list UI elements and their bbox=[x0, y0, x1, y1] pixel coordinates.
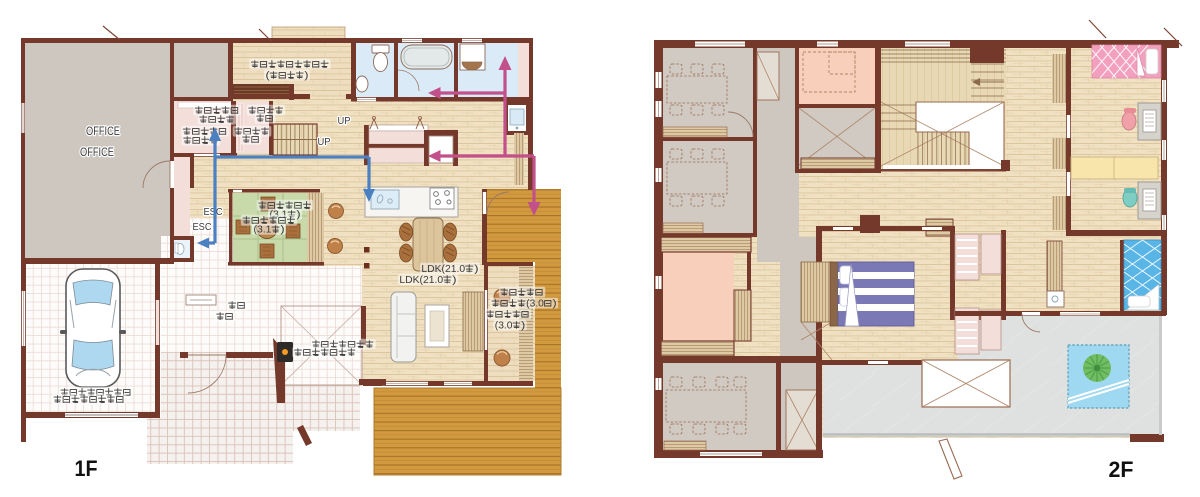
svg-text:UP: UP bbox=[318, 136, 331, 148]
svg-text:(3.1: (3.1 bbox=[254, 225, 273, 236]
svg-text:LDK(21.0: LDK(21.0 bbox=[399, 275, 443, 286]
svg-text:ESC: ESC bbox=[193, 221, 212, 233]
svg-text:): ) bbox=[304, 70, 308, 81]
svg-text:UP: UP bbox=[338, 115, 351, 127]
svg-text:ESC: ESC bbox=[204, 206, 223, 218]
svg-text:1F: 1F bbox=[75, 456, 98, 481]
svg-text:): ) bbox=[521, 320, 525, 331]
svg-text:): ) bbox=[474, 264, 478, 275]
svg-text:OFFICE: OFFICE bbox=[86, 126, 120, 138]
svg-text:): ) bbox=[452, 275, 456, 286]
svg-text:(3.0: (3.0 bbox=[526, 298, 544, 309]
svg-text:LDK(21.0: LDK(21.0 bbox=[421, 264, 465, 275]
svg-text:2F: 2F bbox=[1109, 457, 1134, 482]
svg-text:): ) bbox=[553, 298, 557, 309]
svg-text:OFFICE: OFFICE bbox=[80, 147, 114, 159]
svg-text:(3.0: (3.0 bbox=[495, 320, 513, 331]
svg-text:): ) bbox=[280, 225, 284, 236]
